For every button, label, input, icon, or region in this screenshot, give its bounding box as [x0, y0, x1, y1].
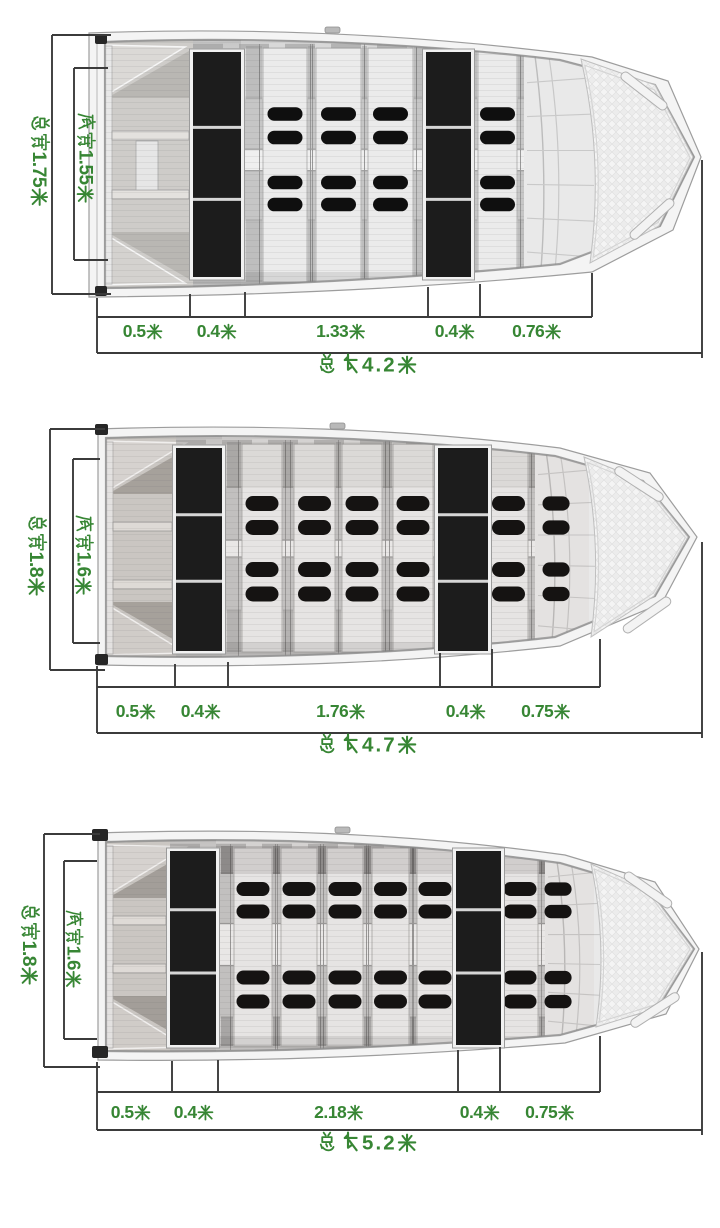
svg-text:8: 8	[18, 956, 40, 967]
svg-text:6: 6	[339, 701, 349, 721]
svg-text:5: 5	[548, 1102, 558, 1122]
svg-text:5: 5	[362, 1131, 373, 1154]
svg-text:5: 5	[124, 1102, 134, 1122]
svg-text:1: 1	[63, 946, 84, 956]
svg-text:.: .	[375, 1131, 381, 1154]
svg-text:2: 2	[383, 353, 394, 376]
svg-text:4: 4	[210, 321, 220, 341]
svg-text:1: 1	[18, 940, 40, 951]
svg-text:3: 3	[339, 321, 349, 341]
svg-text:5: 5	[74, 175, 95, 186]
svg-text:6: 6	[535, 321, 545, 341]
svg-text:4: 4	[448, 321, 458, 341]
svg-text:5: 5	[544, 701, 554, 721]
svg-text:1: 1	[25, 551, 47, 562]
svg-text:4: 4	[194, 701, 204, 721]
svg-text:.: .	[375, 733, 381, 756]
svg-text:6: 6	[72, 567, 93, 578]
svg-text:7: 7	[383, 733, 394, 756]
svg-text:4: 4	[473, 1102, 483, 1122]
svg-text:2: 2	[383, 1131, 394, 1154]
svg-text:4: 4	[459, 701, 469, 721]
svg-text:5: 5	[129, 701, 139, 721]
svg-text:4: 4	[362, 353, 374, 376]
svg-text:4: 4	[187, 1102, 197, 1122]
svg-text:.: .	[375, 353, 381, 376]
svg-text:5: 5	[136, 321, 146, 341]
svg-text:5: 5	[28, 177, 50, 188]
svg-text:8: 8	[25, 567, 47, 578]
svg-text:4: 4	[362, 733, 374, 756]
svg-text:6: 6	[63, 960, 84, 970]
svg-text:8: 8	[337, 1102, 347, 1122]
